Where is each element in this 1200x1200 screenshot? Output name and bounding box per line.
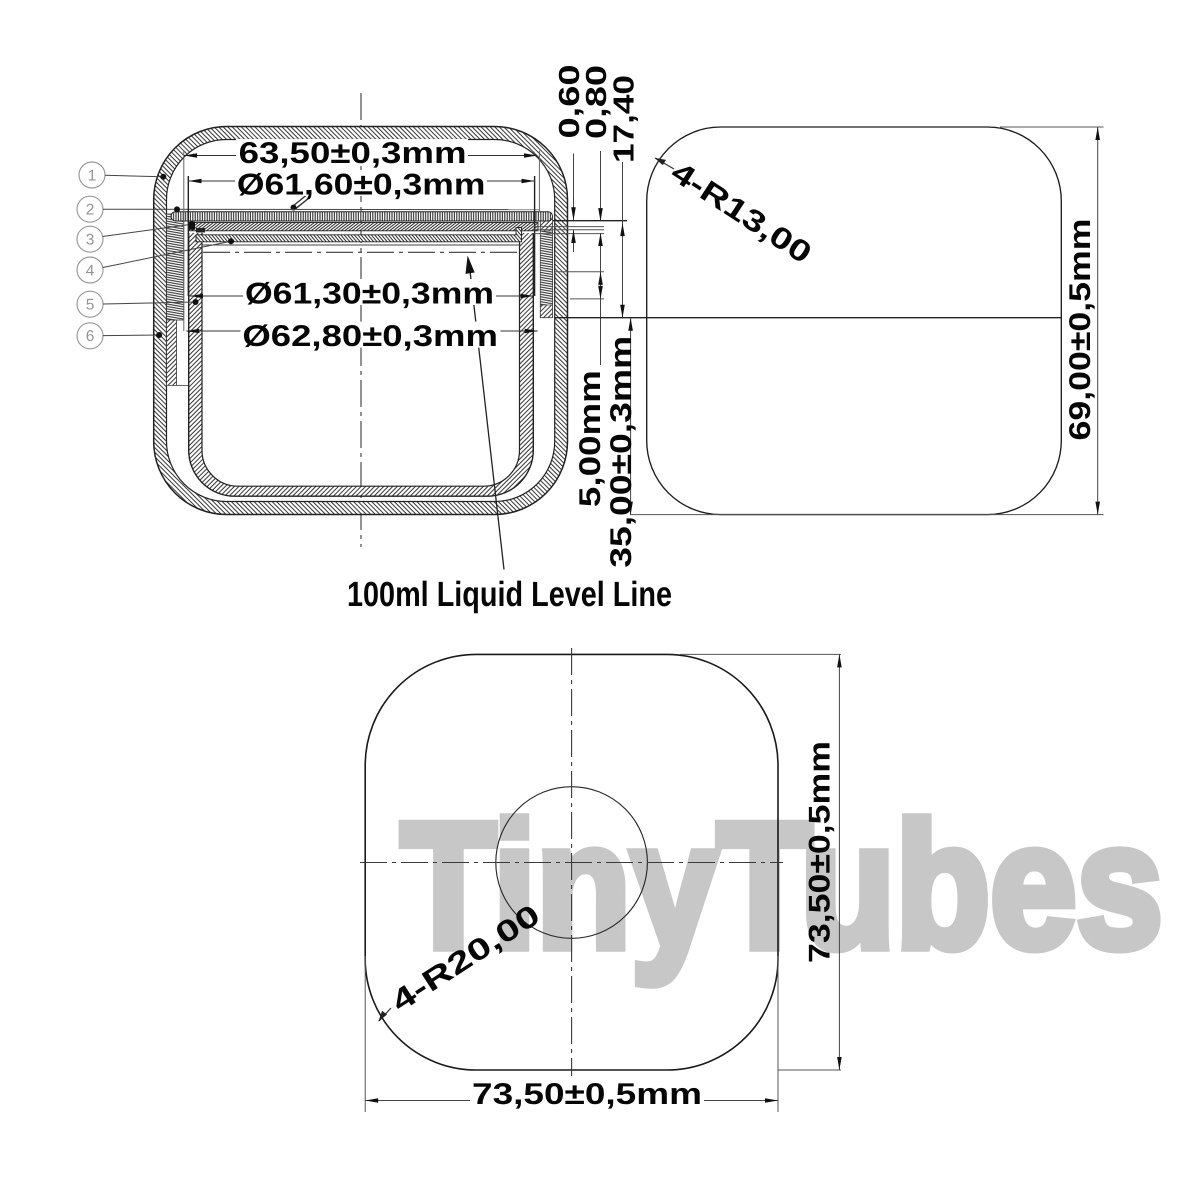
svg-text:100ml Liquid Level Line: 100ml Liquid Level Line bbox=[347, 575, 672, 614]
svg-text:69,00±0,5mm: 69,00±0,5mm bbox=[1064, 219, 1097, 441]
svg-text:4: 4 bbox=[86, 263, 95, 280]
svg-text:6: 6 bbox=[86, 328, 95, 345]
svg-text:TinyTubes: TinyTubes bbox=[401, 786, 1163, 985]
svg-text:35,00±0,3mm: 35,00±0,3mm bbox=[605, 336, 638, 568]
svg-text:3: 3 bbox=[86, 232, 95, 249]
svg-text:2: 2 bbox=[86, 202, 95, 219]
svg-text:5,00mm: 5,00mm bbox=[574, 370, 607, 507]
svg-text:73,50±0,5mm: 73,50±0,5mm bbox=[472, 1078, 702, 1111]
svg-text:63,50±0,3mm: 63,50±0,3mm bbox=[239, 137, 467, 170]
svg-text:73,50±0,5mm: 73,50±0,5mm bbox=[804, 741, 837, 963]
svg-text:1: 1 bbox=[88, 168, 97, 185]
svg-text:Ø61,60±0,3mm: Ø61,60±0,3mm bbox=[237, 169, 486, 202]
svg-text:4-R13,00: 4-R13,00 bbox=[665, 156, 817, 271]
svg-text:5: 5 bbox=[86, 297, 95, 314]
svg-text:Ø61,30±0,3mm: Ø61,30±0,3mm bbox=[245, 278, 494, 311]
svg-text:17,40: 17,40 bbox=[609, 75, 641, 163]
svg-text:Ø62,80±0,3mm: Ø62,80±0,3mm bbox=[242, 320, 498, 353]
